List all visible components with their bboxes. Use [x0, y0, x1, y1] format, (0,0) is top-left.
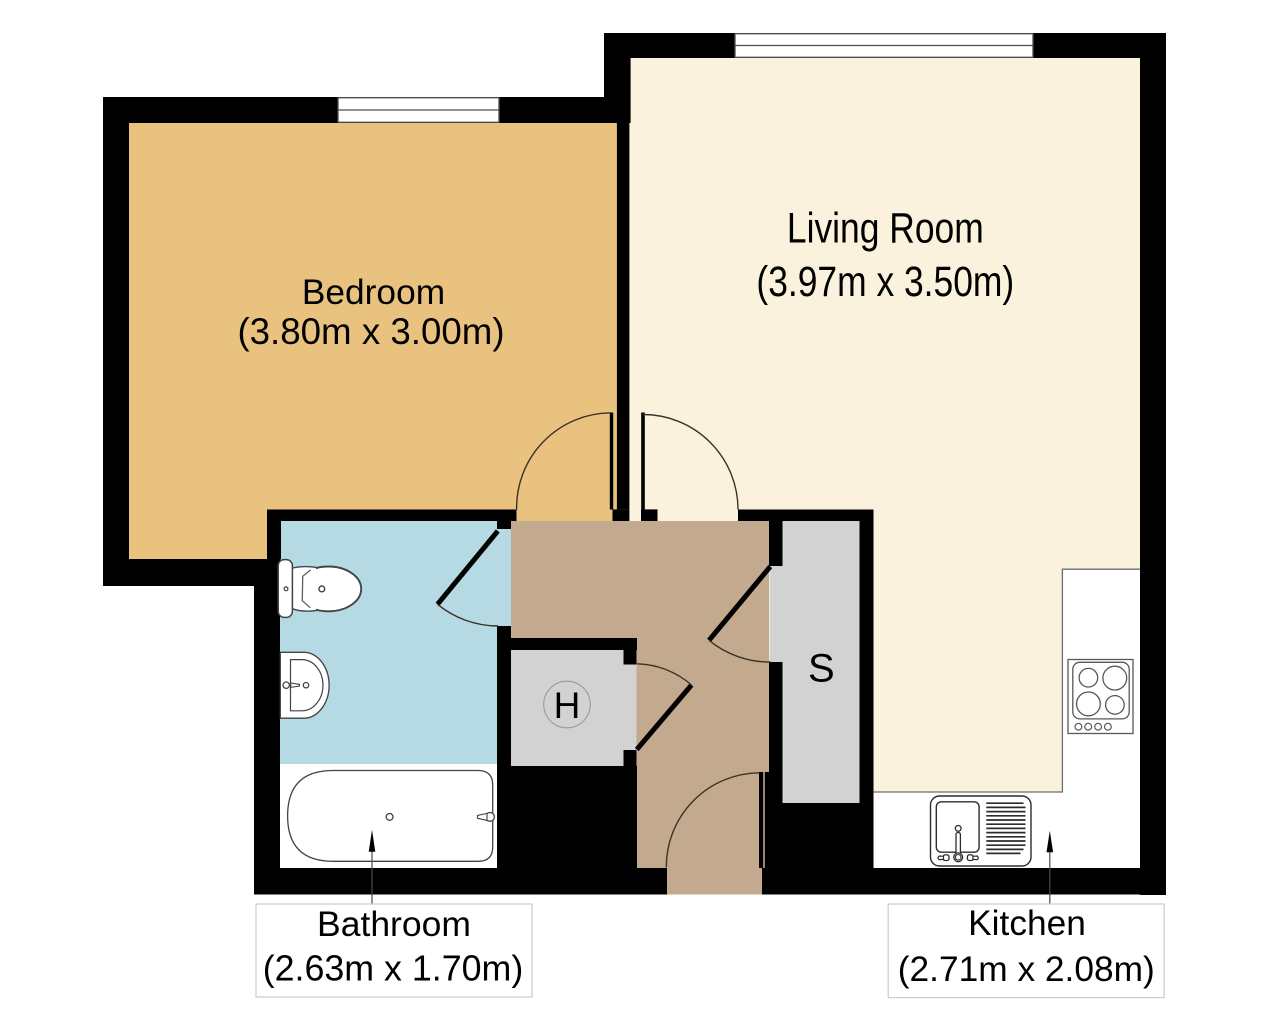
svg-text:Kitchen: Kitchen [968, 904, 1086, 943]
svg-text:S: S [808, 646, 835, 690]
svg-text:Bathroom: Bathroom [317, 904, 471, 944]
svg-text:(3.97m x 3.50m): (3.97m x 3.50m) [756, 258, 1014, 306]
svg-text:(2.71m x 2.08m): (2.71m x 2.08m) [898, 950, 1155, 989]
svg-text:(2.63m x 1.70m): (2.63m x 1.70m) [263, 949, 524, 989]
svg-text:(3.80m x 3.00m): (3.80m x 3.00m) [237, 311, 504, 352]
svg-text:Bedroom: Bedroom [302, 273, 445, 312]
svg-text:Living Room: Living Room [787, 205, 984, 253]
svg-text:H: H [554, 685, 581, 726]
